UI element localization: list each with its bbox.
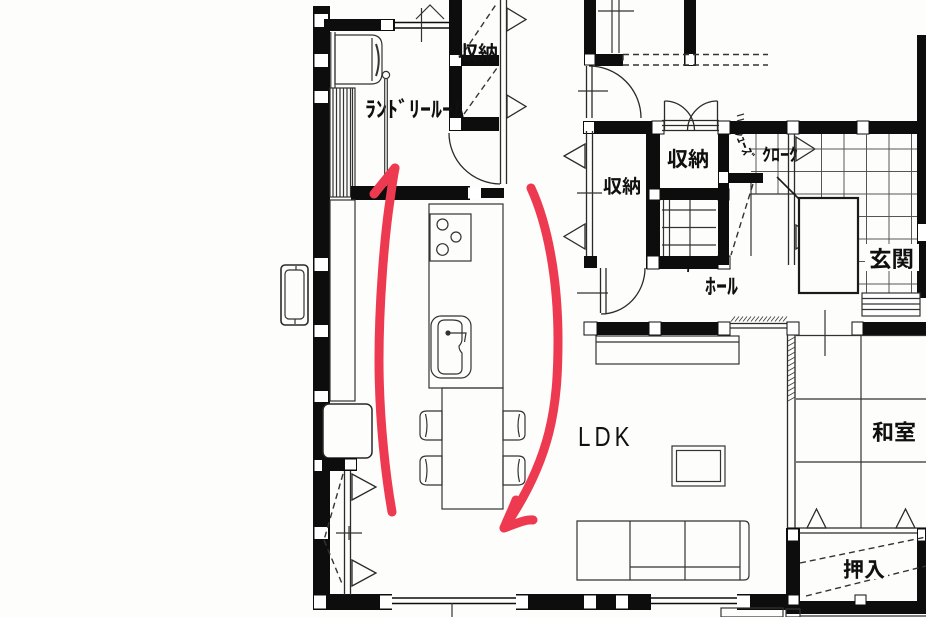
svg-text:LDK: LDK	[578, 422, 634, 453]
